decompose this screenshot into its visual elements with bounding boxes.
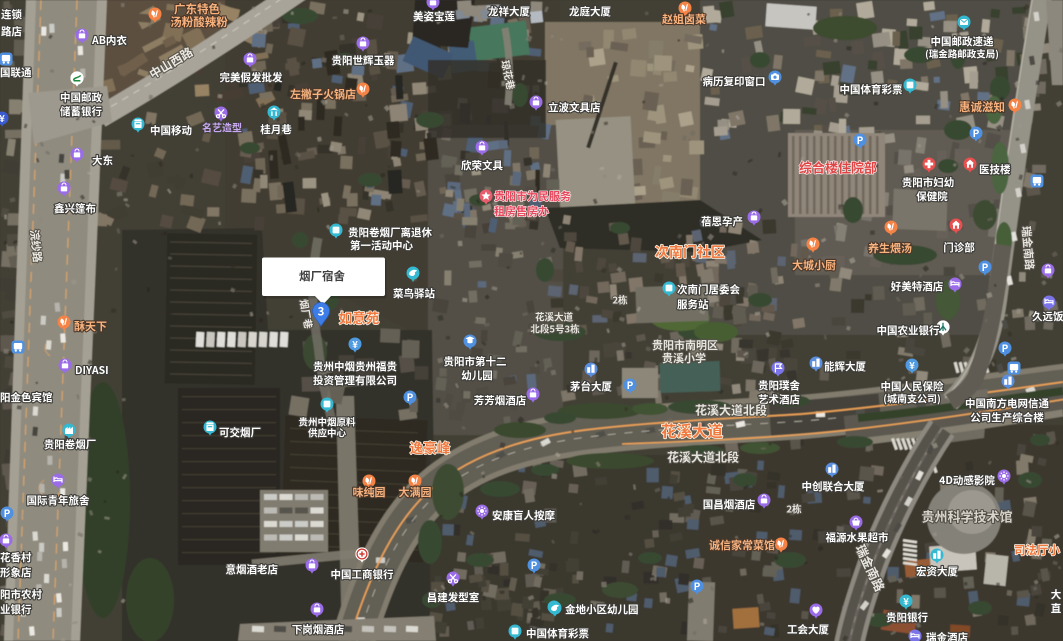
svg-text:贵阳市妇幼: 贵阳市妇幼 [902, 175, 955, 190]
svg-text:瑞金酒店: 瑞金酒店 [926, 630, 968, 641]
svg-text:P: P [627, 377, 634, 392]
svg-text:国联通: 国联通 [0, 65, 32, 80]
svg-text:P: P [531, 557, 538, 572]
svg-text:综合楼住院部: 综合楼住院部 [799, 158, 877, 177]
svg-text:能辉大厦: 能辉大厦 [824, 359, 866, 374]
svg-text:茅台大厦: 茅台大厦 [570, 379, 612, 394]
svg-text:中国南方电网信通: 中国南方电网信通 [965, 396, 1049, 411]
svg-text:门诊部: 门诊部 [943, 240, 975, 255]
svg-text:阳金色宾馆: 阳金色宾馆 [0, 390, 53, 405]
svg-text:中国农业银行: 中国农业银行 [877, 323, 940, 338]
svg-text:P: P [694, 578, 701, 593]
svg-text:贵阳璞舍: 贵阳璞舍 [758, 378, 800, 393]
svg-text:大城小厨: 大城小厨 [792, 257, 836, 273]
svg-text:花香村: 花香村 [0, 550, 32, 565]
svg-text:芳芳烟酒店: 芳芳烟酒店 [474, 393, 527, 408]
svg-text:(城南支公司): (城南支公司) [883, 391, 941, 406]
svg-text:服务站: 服务站 [677, 297, 709, 312]
svg-text:储蓄银行: 储蓄银行 [60, 104, 102, 119]
svg-text:4D动感影院: 4D动感影院 [939, 473, 995, 488]
svg-text:P: P [1002, 340, 1009, 355]
svg-text:幼儿园: 幼儿园 [461, 368, 493, 383]
svg-text:养生煨汤: 养生煨汤 [868, 240, 912, 256]
svg-text:赵姐卤菜: 赵姐卤菜 [662, 11, 706, 27]
svg-text:中国体育彩票: 中国体育彩票 [840, 82, 903, 97]
svg-text:名艺造型: 名艺造型 [202, 120, 242, 135]
svg-text:中国邮政: 中国邮政 [60, 90, 102, 105]
svg-text:贵阳卷烟厂: 贵阳卷烟厂 [44, 437, 97, 452]
svg-text:意烟酒老店: 意烟酒老店 [226, 562, 279, 577]
svg-text:好美特酒店: 好美特酒店 [891, 279, 944, 294]
svg-text:味纯园: 味纯园 [353, 484, 386, 500]
svg-text:路店: 路店 [1, 24, 22, 39]
svg-text:如意苑: 如意苑 [339, 307, 380, 327]
svg-text:浣纱路: 浣纱路 [26, 229, 45, 263]
svg-text:贵州中烟贵州福贵: 贵州中烟贵州福贵 [313, 359, 397, 374]
svg-text:形象店: 形象店 [0, 565, 32, 580]
svg-text:保健院: 保健院 [916, 189, 948, 204]
svg-text:龙祥大厦: 龙祥大厦 [488, 4, 530, 19]
svg-text:贵阳世辉玉器: 贵阳世辉玉器 [332, 53, 395, 68]
svg-text:美姿宝莲: 美姿宝莲 [413, 9, 455, 24]
svg-text:菜鸟驿站: 菜鸟驿站 [393, 286, 435, 301]
svg-text:¥: ¥ [909, 358, 915, 372]
svg-text:¥: ¥ [352, 337, 358, 351]
svg-text:病历复印窗口: 病历复印窗口 [703, 74, 766, 89]
svg-text:惠诚滋知: 惠诚滋知 [959, 99, 1005, 115]
svg-text:3: 3 [318, 304, 325, 320]
svg-text:阳市农村: 阳市农村 [0, 587, 42, 602]
svg-text:中国体育彩票: 中国体育彩票 [526, 626, 589, 641]
svg-text:大东: 大东 [92, 153, 113, 168]
svg-text:诚信家常菜馆: 诚信家常菜馆 [709, 537, 775, 553]
svg-text:可交烟厂: 可交烟厂 [219, 425, 261, 440]
svg-text:连锁: 连锁 [1, 7, 22, 22]
svg-text:北段5号3栋: 北段5号3栋 [530, 321, 580, 335]
svg-text:次南门居委会: 次南门居委会 [677, 282, 740, 297]
svg-text:金地小区幼儿园: 金地小区幼儿园 [565, 602, 639, 617]
svg-text:直: 直 [1051, 601, 1062, 616]
svg-text:DIYASI: DIYASI [75, 363, 109, 378]
svg-text:P: P [4, 505, 11, 520]
svg-text:贵溪小学: 贵溪小学 [662, 350, 706, 366]
svg-text:2栋: 2栋 [612, 292, 628, 306]
svg-text:宏资大厦: 宏资大厦 [916, 564, 958, 579]
svg-text:汤粉酸辣粉: 汤粉酸辣粉 [170, 14, 228, 30]
svg-text:P: P [982, 259, 989, 274]
svg-text:完美假发批发: 完美假发批发 [220, 70, 283, 85]
svg-text:投资管理有限公司: 投资管理有限公司 [313, 373, 397, 388]
svg-text:贵阳银行: 贵阳银行 [886, 610, 928, 625]
svg-text:司法厅小: 司法厅小 [1014, 542, 1060, 558]
svg-text:公司生产综合楼: 公司生产综合楼 [970, 410, 1044, 425]
svg-text:下岗烟酒店: 下岗烟酒店 [292, 622, 345, 637]
svg-text:供应中心: 供应中心 [308, 425, 347, 439]
svg-text:花溪大道北段: 花溪大道北段 [667, 448, 739, 465]
svg-text:鑫兴篷布: 鑫兴篷布 [54, 201, 96, 216]
svg-text:贵州科学技术馆: 贵州科学技术馆 [921, 507, 1012, 526]
svg-text:安康盲人按摩: 安康盲人按摩 [492, 508, 555, 523]
svg-text:立波文具店: 立波文具店 [548, 100, 601, 115]
svg-text:工会大厦: 工会大厦 [787, 622, 829, 637]
svg-text:大: 大 [1051, 587, 1062, 602]
svg-text:2栋: 2栋 [786, 501, 802, 515]
svg-text:P: P [407, 389, 414, 404]
svg-text:次南门社区: 次南门社区 [655, 242, 725, 262]
svg-text:¥: ¥ [0, 111, 5, 125]
svg-text:昌建发型室: 昌建发型室 [427, 590, 480, 605]
svg-text:(瑞金路邮政支局): (瑞金路邮政支局) [925, 46, 999, 60]
svg-text:福源水果超市: 福源水果超市 [826, 530, 889, 545]
svg-text:花溪大道北段: 花溪大道北段 [695, 401, 767, 418]
svg-text:中国移动: 中国移动 [150, 123, 192, 138]
svg-text:医技楼: 医技楼 [979, 162, 1011, 177]
svg-text:蓓恩孕产: 蓓恩孕产 [701, 214, 743, 229]
svg-text:第一活动中心: 第一活动中心 [350, 238, 413, 253]
svg-text:欣荣文具: 欣荣文具 [461, 158, 503, 173]
svg-text:花溪大道: 花溪大道 [661, 420, 724, 442]
svg-text:久远饭: 久远饭 [1032, 309, 1063, 324]
svg-text:P: P [973, 125, 980, 140]
svg-text:酥天下: 酥天下 [74, 318, 107, 334]
svg-text:龙庭大厦: 龙庭大厦 [569, 4, 611, 19]
svg-text:烟厂宿舍: 烟厂宿舍 [299, 268, 345, 284]
svg-text:左撇子火锅店: 左撇子火锅店 [290, 86, 356, 102]
svg-text:贵阳市第十二: 贵阳市第十二 [444, 354, 507, 369]
svg-text:逸豪峰: 逸豪峰 [410, 437, 451, 457]
svg-text:中创联合大厦: 中创联合大厦 [802, 479, 865, 494]
svg-text:国际青年旅舍: 国际青年旅舍 [27, 493, 90, 508]
svg-text:贵阳市为民服务: 贵阳市为民服务 [494, 188, 571, 204]
svg-text:业银行: 业银行 [0, 602, 32, 617]
svg-text:¥: ¥ [903, 594, 909, 608]
svg-text:AB内衣: AB内衣 [91, 33, 127, 48]
svg-text:桂月巷: 桂月巷 [260, 122, 292, 137]
svg-text:国昌烟酒店: 国昌烟酒店 [703, 497, 756, 512]
svg-text:大满园: 大满园 [399, 484, 432, 500]
svg-text:P: P [857, 132, 864, 147]
svg-text:中国工商银行: 中国工商银行 [331, 567, 394, 582]
svg-text:租房售房办: 租房售房办 [494, 203, 549, 219]
